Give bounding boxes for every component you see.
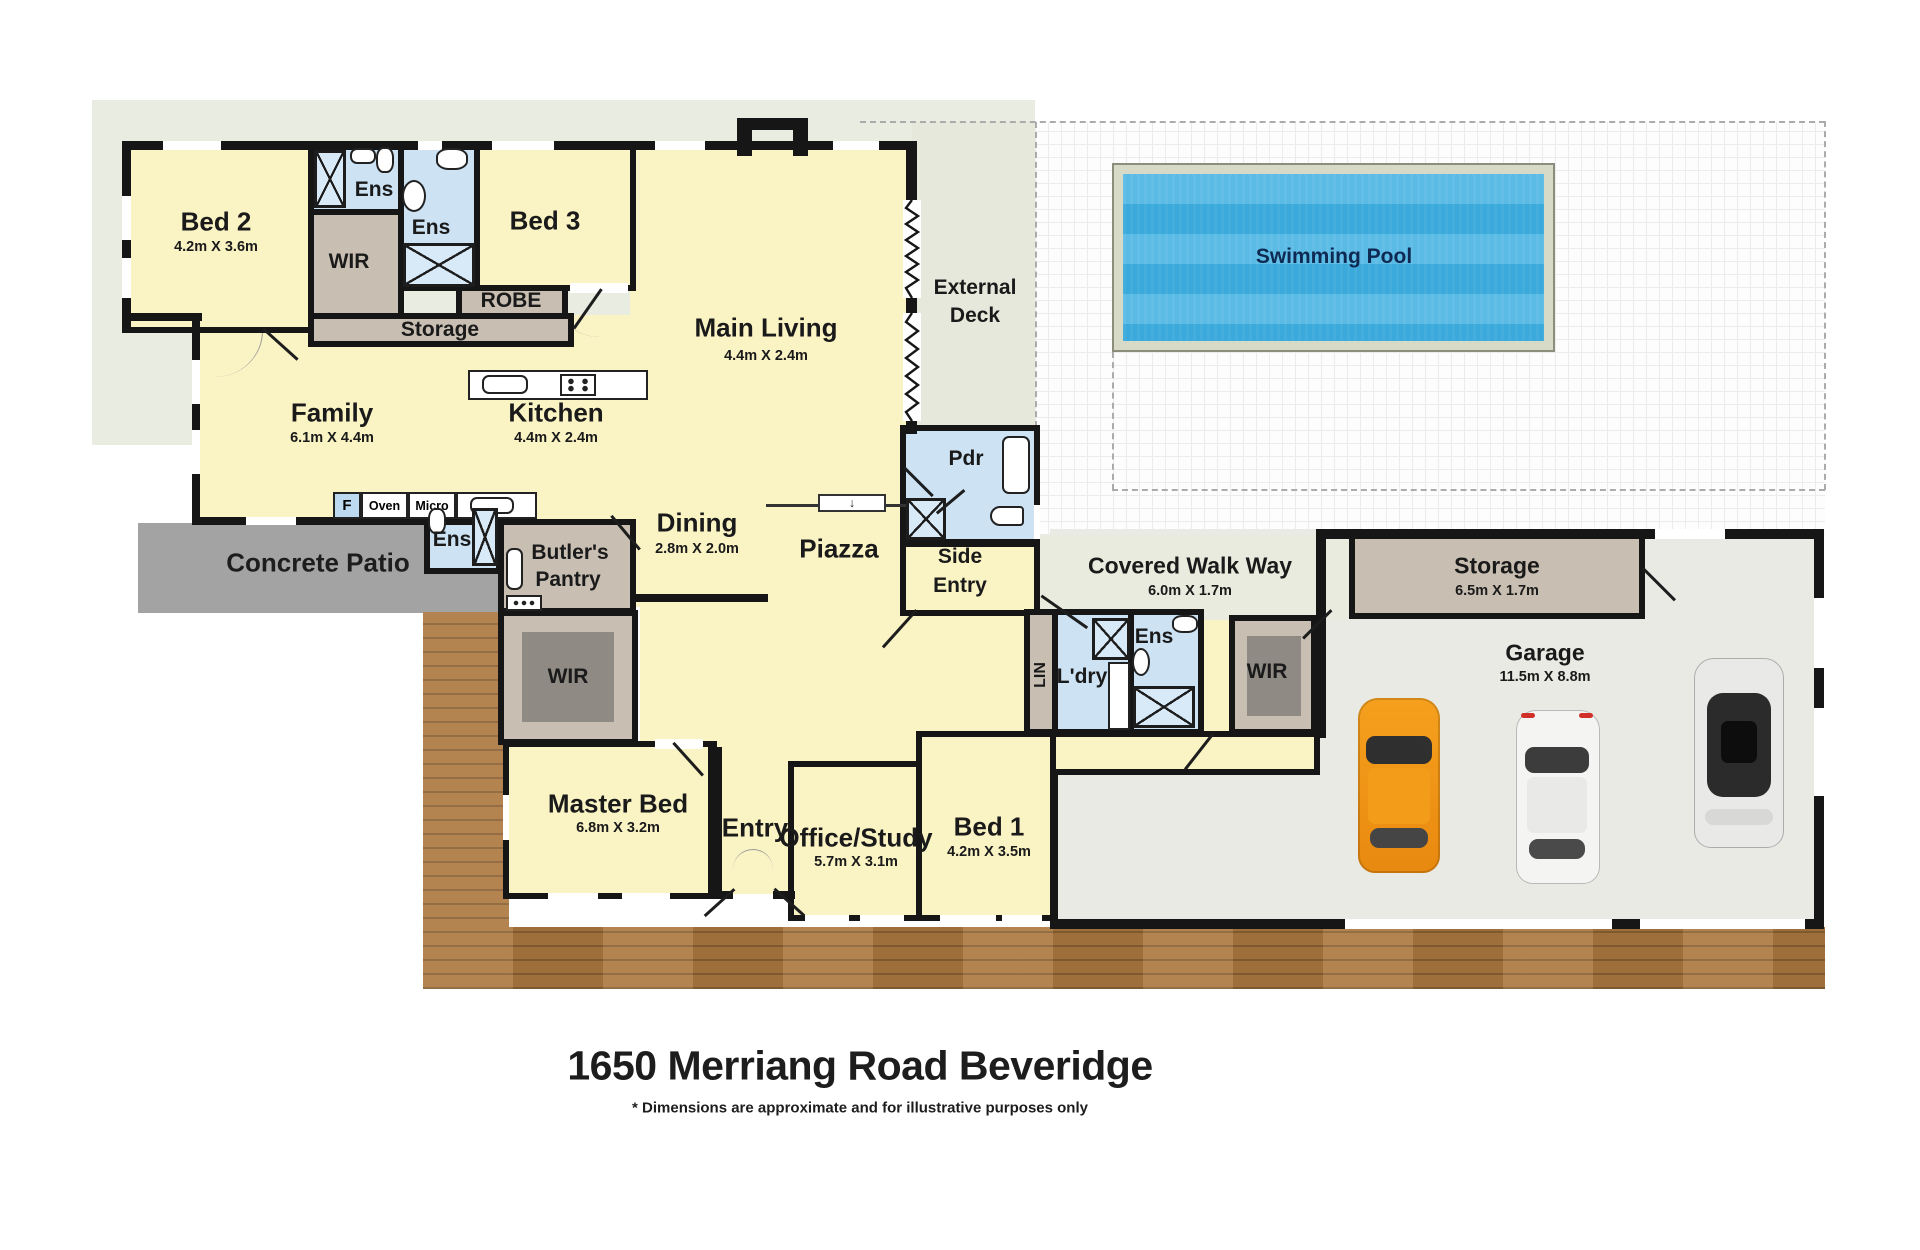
- ens-bed1-label: Ens: [1135, 625, 1174, 649]
- car-white-rear-window: [1529, 839, 1585, 859]
- window-bed1-south-1: [940, 915, 996, 921]
- family-dims: 6.1m X 4.4m: [290, 430, 374, 446]
- boundary-dashed-top: [860, 121, 1825, 123]
- butlers-pantry-label-2: Pantry: [535, 568, 600, 592]
- island-sink-icon: [482, 375, 528, 394]
- storage-hall-label: Storage: [401, 318, 479, 342]
- wall-living-east-post1: [906, 141, 917, 201]
- garage-door-1: [1345, 919, 1612, 929]
- shower-ens-bed1-icon: [1133, 686, 1195, 728]
- wall-living-east-post2: [906, 296, 917, 314]
- garage-dims: 11.5m X 8.8m: [1499, 669, 1590, 685]
- external-deck-label-2: Deck: [950, 304, 1000, 328]
- office-study-label: Office/Study: [779, 823, 932, 854]
- car-white-roof: [1527, 777, 1587, 833]
- boundary-dashed-right: [1824, 121, 1826, 490]
- fridge-label: F: [342, 497, 351, 514]
- laundry-cabinet: [1108, 662, 1130, 730]
- garage-window-right-1: [1814, 598, 1824, 668]
- disclaimer: * Dimensions are approximate and for ill…: [632, 1100, 1088, 1117]
- storage-garage-dims: 6.5m X 1.7m: [1455, 583, 1539, 599]
- office-study-dims: 5.7m X 3.1m: [814, 854, 898, 870]
- oven-label: Oven: [369, 499, 400, 513]
- window-pdr-east: [1034, 505, 1040, 539]
- wir-master-label: WIR: [548, 665, 589, 689]
- car-silver-hood: [1705, 809, 1773, 825]
- sink-pantry-icon: [506, 548, 523, 590]
- toilet-ens-bed3-icon: [436, 148, 468, 170]
- window-left-1: [122, 196, 131, 240]
- window-left-2: [122, 258, 131, 298]
- master-bed-dims: 6.8m X 3.2m: [576, 820, 660, 836]
- toilet-ens-bed2-icon: [376, 147, 394, 173]
- wall-left-family: [192, 313, 200, 523]
- laundry-label: L'dry: [1057, 665, 1108, 689]
- garage-wall-top: [1316, 529, 1824, 539]
- fridge-cabinet: F: [333, 492, 361, 519]
- swimming-pool-label: Swimming Pool: [1256, 245, 1412, 269]
- window-bed1-south-2: [1002, 915, 1042, 921]
- shower-ens-bed3-icon: [403, 243, 475, 287]
- pdr-label: Pdr: [948, 447, 983, 471]
- concrete-patio-label: Concrete Patio: [226, 548, 410, 579]
- wood-deck-bottom: [423, 927, 1825, 989]
- porch-nib-left: [737, 118, 752, 156]
- bed3-label: Bed 3: [510, 206, 581, 237]
- covered-walkway-label: Covered Walk Way: [1088, 553, 1292, 580]
- window-top-1: [163, 141, 221, 150]
- car-silver: [1694, 658, 1784, 848]
- garage-label: Garage: [1505, 640, 1584, 667]
- ens-bed3-label: Ens: [412, 216, 451, 240]
- garage-door-2: [1640, 919, 1805, 929]
- basin-ens-bed3-icon: [402, 180, 426, 212]
- bed1-dims: 4.2m X 3.5m: [947, 844, 1031, 860]
- window-master-south-2: [622, 893, 670, 899]
- window-top-2: [418, 141, 442, 150]
- side-entry-label-1: Side: [938, 545, 982, 569]
- dining-label: Dining: [657, 508, 738, 539]
- piazza-label: Piazza: [799, 534, 879, 565]
- deck-edge-dashed: [1035, 122, 1037, 437]
- kitchen-label: Kitchen: [508, 398, 603, 429]
- covered-walkway-dims: 6.0m X 1.7m: [1148, 583, 1232, 599]
- car-white-taillight-left: [1521, 713, 1535, 718]
- porch-nib-right: [793, 118, 808, 156]
- window-master-south-1: [548, 893, 598, 899]
- garage-window-top: [1655, 529, 1725, 539]
- storage-garage-label: Storage: [1454, 553, 1540, 580]
- garage-wall-left-upper: [1316, 533, 1326, 738]
- bed1-label: Bed 1: [954, 812, 1025, 843]
- car-white-windshield: [1525, 747, 1589, 773]
- window-family-south: [246, 517, 296, 525]
- bed2-dims: 4.2m X 3.6m: [174, 239, 258, 255]
- ens-bed2-label: Ens: [355, 178, 394, 202]
- basin-ens-bed2-icon: [350, 148, 376, 164]
- car-white-taillight-right: [1579, 713, 1593, 718]
- wir-bed1-label: WIR: [1247, 660, 1288, 684]
- floor-plan: Swimming Pool: [0, 0, 1920, 1250]
- main-living-dims: 4.4m X 2.4m: [724, 348, 808, 364]
- toilet-ens-bed1-icon: [1172, 615, 1198, 633]
- car-orange-roof: [1368, 768, 1430, 824]
- car-silver-sunroof: [1721, 721, 1757, 763]
- window-top-3: [492, 141, 554, 150]
- main-living-label: Main Living: [695, 313, 838, 344]
- entry-label: Entry: [722, 813, 788, 844]
- bed2-label: Bed 2: [181, 207, 252, 238]
- cooktop-pantry-icon: [506, 595, 542, 611]
- bath-pdr-icon: [1002, 436, 1030, 494]
- car-orange-windshield: [1366, 736, 1432, 764]
- closet-pdr-icon: [906, 498, 946, 540]
- window-office-south-1: [805, 915, 849, 921]
- shower-ens-bed2-icon: [314, 150, 346, 208]
- garage-window-right-2: [1814, 708, 1824, 796]
- window-family-2: [192, 430, 200, 474]
- shower-laundry-icon: [1092, 618, 1130, 660]
- shower-ens-master-icon: [472, 508, 498, 566]
- arc-entry: [733, 849, 773, 889]
- kitchen-dims: 4.4m X 2.4m: [514, 430, 598, 446]
- window-top-5: [833, 141, 879, 150]
- external-deck-label-1: External: [934, 276, 1017, 300]
- main-living-zone: [630, 147, 912, 439]
- robe-label: ROBE: [481, 289, 542, 313]
- window-office-south-2: [860, 915, 904, 921]
- master-bed-label: Master Bed: [548, 789, 688, 820]
- lin-label: LIN: [1032, 662, 1050, 688]
- wall-dining-south: [630, 594, 768, 602]
- wall-master-entry: [708, 747, 722, 895]
- window-family-1: [192, 360, 200, 404]
- wall-living-east-post3: [906, 420, 917, 434]
- wall-step-family: [122, 313, 202, 321]
- car-orange-rear-window: [1370, 828, 1428, 848]
- dining-dims: 2.8m X 2.0m: [655, 541, 739, 557]
- window-master-west: [503, 795, 509, 840]
- toilet-pdr-icon: [990, 506, 1024, 526]
- family-label: Family: [291, 398, 373, 429]
- butlers-pantry-label-1: Butler's: [531, 541, 608, 565]
- boundary-dashed-bottom: [1112, 489, 1825, 491]
- garage-wall-left-lower: [1050, 775, 1058, 925]
- wir-bed2-label: WIR: [329, 250, 370, 274]
- oven-cabinet: Oven: [361, 492, 408, 519]
- bifold-door-icon: [903, 313, 921, 421]
- bifold-door-icon: [903, 200, 921, 298]
- car-orange: [1358, 698, 1440, 873]
- step-down-arrow-icon: ↓: [849, 496, 855, 510]
- basin-ens-bed1-icon: [1132, 648, 1150, 676]
- side-entry-label-2: Entry: [933, 574, 987, 598]
- boundary-dashed-left: [1112, 352, 1114, 490]
- window-top-4: [655, 141, 705, 150]
- page-title: 1650 Merriang Road Beveridge: [567, 1043, 1152, 1090]
- cooktop-icon: [560, 374, 596, 396]
- car-white: [1516, 710, 1600, 884]
- ens-master-label: Ens: [433, 528, 472, 552]
